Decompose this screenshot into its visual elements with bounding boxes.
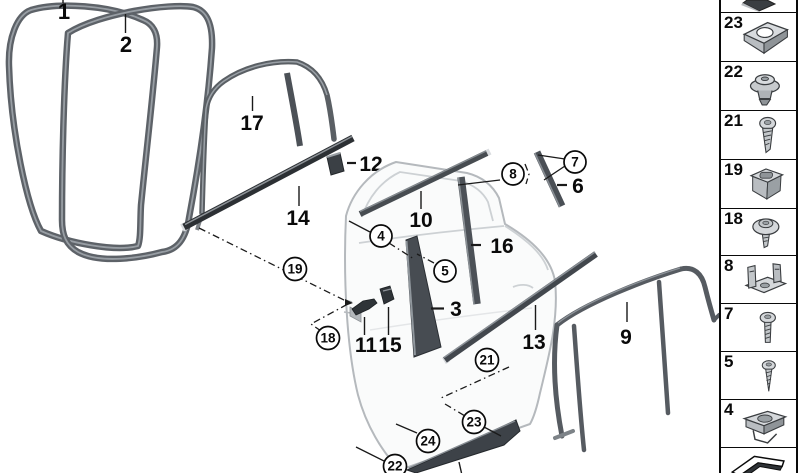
leader-line — [356, 447, 384, 461]
belt-strip-14: 14 — [182, 137, 353, 231]
part-label-14[interactable]: 14 — [286, 207, 310, 230]
part-label-10[interactable]: 10 — [409, 209, 432, 232]
part-label-11[interactable]: 11 — [355, 334, 378, 357]
part-label-3[interactable]: 3 — [450, 298, 462, 321]
cell-number: 21 — [724, 112, 743, 129]
svg-text:7: 7 — [571, 155, 579, 170]
callout-18[interactable]: 18 — [317, 327, 340, 350]
window-frame-trim-17: 17 — [197, 62, 334, 230]
clip-nut-icon — [737, 402, 791, 446]
cell-number: 22 — [724, 63, 743, 80]
cell-number: 23 — [724, 14, 743, 31]
svg-text:23: 23 — [466, 415, 482, 430]
svg-text:8: 8 — [509, 167, 517, 182]
sidebar-cell-4[interactable]: 4 — [721, 400, 796, 448]
label-tick — [459, 462, 462, 473]
cell-number: 18 — [724, 210, 743, 227]
part-label-17[interactable]: 17 — [240, 112, 263, 135]
callout-23[interactable]: 23 — [463, 411, 486, 434]
bracket-clip-icon — [737, 259, 791, 301]
pan-screw-icon — [743, 307, 791, 349]
sidebar-cell-18[interactable]: 18 — [721, 209, 796, 257]
part-label-2[interactable]: 2 — [120, 32, 132, 57]
svg-text:22: 22 — [387, 459, 402, 473]
sidebar-cell-partial-top[interactable] — [721, 0, 796, 13]
svg-text:19: 19 — [287, 262, 302, 277]
leader-line-dashdot — [525, 164, 529, 184]
sidebar-cell-22[interactable]: 22 — [721, 62, 796, 111]
sidebar-cell-partial-bottom[interactable] — [721, 448, 796, 473]
cell-number: 8 — [724, 257, 733, 274]
part-label-1[interactable]: 1 — [58, 0, 70, 24]
callout-7[interactable]: 7 — [564, 151, 586, 173]
window-guide-frame-9: 9 — [555, 268, 719, 450]
part-label-16[interactable]: 16 — [490, 235, 513, 258]
sidebar-cell-5[interactable]: 5 — [721, 352, 796, 400]
sidebar-cell-23[interactable]: 23 — [721, 13, 796, 62]
page-arrow-icon — [724, 449, 794, 473]
callout-5[interactable]: 5 — [434, 260, 456, 282]
callout-19[interactable]: 19 — [284, 258, 307, 281]
sidebar-cell-19[interactable]: 19 — [721, 160, 796, 209]
svg-text:24: 24 — [420, 434, 436, 449]
svg-text:5: 5 — [441, 264, 449, 279]
cell-number: 4 — [724, 401, 733, 418]
svg-text:21: 21 — [479, 353, 495, 368]
callout-4[interactable]: 4 — [370, 225, 392, 247]
door-seal-1: 1 — [9, 0, 157, 248]
torx-screw-icon — [741, 113, 791, 157]
sidebar-cell-8[interactable]: 8 — [721, 256, 796, 304]
svg-text:18: 18 — [320, 331, 336, 346]
grommet-icon — [737, 64, 791, 108]
part-label-9[interactable]: 9 — [620, 326, 632, 349]
sidebar-cell-21[interactable]: 21 — [721, 111, 796, 160]
callout-22[interactable]: 22 — [384, 455, 407, 473]
washer-screw-icon — [739, 211, 791, 253]
callout-24[interactable]: 24 — [417, 430, 440, 453]
cell-number: 5 — [724, 353, 733, 370]
speed-nut-icon — [737, 15, 791, 59]
callout-8[interactable]: 8 — [502, 163, 524, 185]
clip-partial-icon — [729, 0, 789, 12]
leader-line-dashdot — [199, 228, 348, 302]
cell-number: 7 — [724, 305, 733, 322]
sidebar-cell-7[interactable]: 7 — [721, 304, 796, 352]
cell-number: 19 — [724, 161, 743, 178]
fastener-sidebar: 23 22 21 19 — [719, 0, 798, 473]
cage-nut-icon — [741, 163, 791, 205]
tapping-screw-icon — [745, 355, 791, 397]
parts-diagram: 1 2 17 14 12 — [0, 0, 800, 473]
part-label-6[interactable]: 6 — [572, 175, 584, 198]
part-label-13[interactable]: 13 — [522, 331, 545, 354]
svg-text:4: 4 — [377, 229, 385, 244]
part-label-15[interactable]: 15 — [378, 334, 402, 357]
callout-21[interactable]: 21 — [476, 349, 499, 372]
